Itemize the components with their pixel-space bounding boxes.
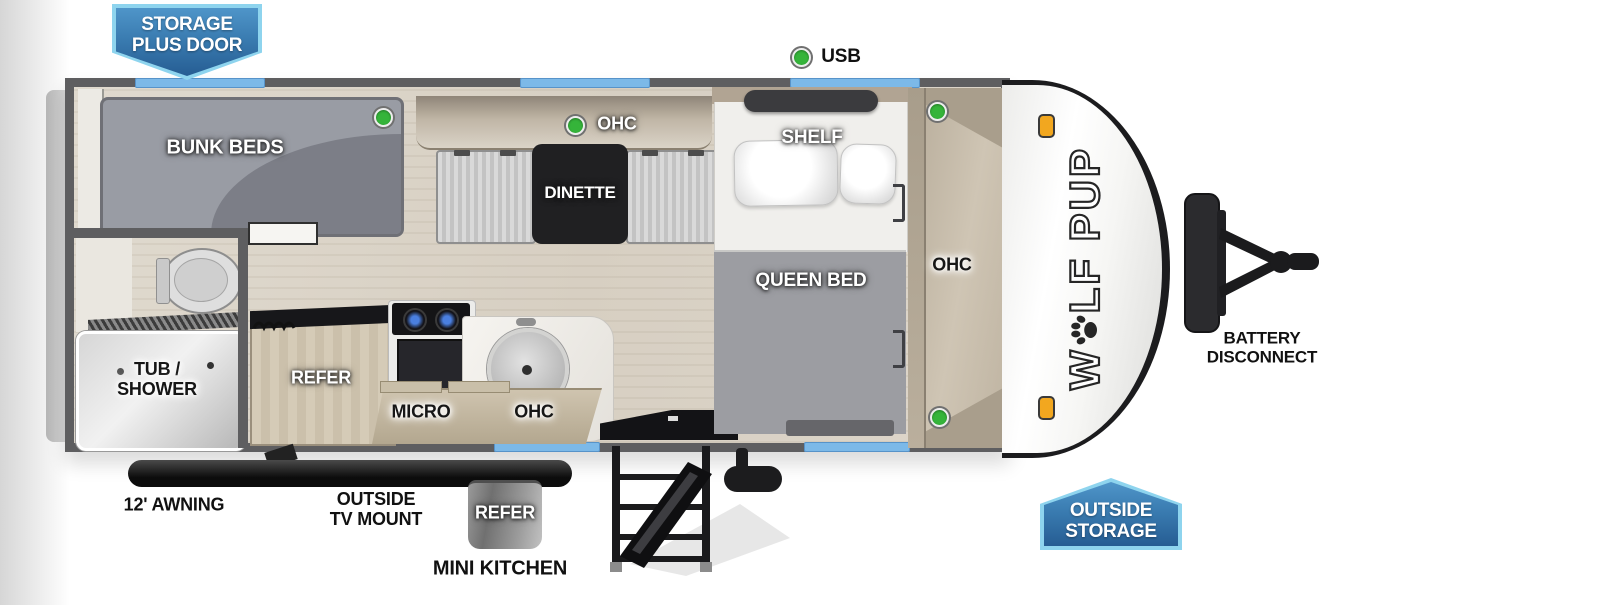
bed-foot-step [786,420,894,436]
brand-logo-post: LF PUP [1061,146,1109,313]
tv-mount-line2: TV MOUNT [330,510,422,530]
brand-logo-pre: W [1061,347,1109,390]
bunk-beds [100,97,404,237]
bedroom-light-dot-top [928,102,947,121]
entry-step-mark [668,416,678,421]
toilet [162,248,242,314]
usb-dot [792,48,811,67]
window-top-dinette [520,78,650,88]
bed-lift-handle-top [893,184,905,222]
bathroom-door [248,222,318,245]
bunk-light-dot [374,108,393,127]
coat-hooks-icon [252,316,300,332]
dinette-light-dot [566,116,585,135]
sink-drain [522,365,532,375]
dinette-ohc-cabinet [416,96,712,150]
bench-bracket [454,150,470,156]
burner-left [403,308,427,332]
faucet [516,318,536,326]
toilet-lid [174,258,228,302]
ohc-door-edge [908,88,926,448]
hitch [1145,182,1320,342]
tub-shower-line1: TUB / [117,360,197,380]
brand-logo: W LF PUP [1061,146,1109,390]
dinette-ohc-label: OHC [597,114,636,135]
toilet-tank [156,258,170,304]
battery-line1: BATTERY [1207,329,1317,348]
micro-label: MICRO [392,402,451,423]
battery-disconnect-label: BATTERY DISCONNECT [1207,329,1317,366]
shelf-label: SHELF [781,127,842,149]
bathroom-wall-top [72,228,248,238]
outside-storage-badge: OUTSIDE STORAGE [1040,478,1182,550]
storage-plus-door-badge: STORAGE PLUS DOOR [112,4,262,80]
tub-shower-line2: SHOWER [117,380,197,400]
outside-refer-label: REFER [475,503,535,524]
tub-shower-label: TUB / SHOWER [117,360,197,400]
dinette-bench-right [626,150,724,244]
badge-line2: STORAGE [1040,521,1182,542]
bench-bracket [500,150,516,156]
outside-storage-text: OUTSIDE STORAGE [1040,500,1182,543]
bench-bracket [688,150,704,156]
marker-light-top [1038,114,1055,138]
badge-line1: OUTSIDE [1040,500,1182,521]
queen-bed-label: QUEEN BED [755,270,866,292]
kitchen-ohc-label: OHC [514,402,553,423]
window-bottom-bedroom [804,442,910,452]
badge-line2: PLUS DOOR [112,35,262,56]
bedroom-ohc-label: OHC [932,255,971,276]
entry-steps [590,446,790,576]
cabinet-flap-left [380,381,442,393]
pillow-right [839,143,897,205]
tv-mount-label: OUTSIDE TV MOUNT [330,490,422,530]
overhead-shelf-bar [744,90,878,112]
bathroom-wall-right [238,228,248,448]
refer-label: REFER [291,368,351,389]
burner-right [435,308,459,332]
bed-lift-handle-bottom [893,330,905,368]
cabinet-flap-right [448,381,510,393]
tv-mount-line1: OUTSIDE [330,490,422,510]
badge-line1: STORAGE [112,14,262,35]
bunk-beds-label: BUNK BEDS [166,137,283,160]
marker-light-bottom [1038,396,1055,420]
awning-label: 12' AWNING [124,495,225,516]
bedroom-light-dot-bottom [930,408,949,427]
floorplan-canvas: BUNK BEDS TUB / SHOWER REFER M [0,0,1600,605]
battery-line2: DISCONNECT [1207,348,1317,367]
pillow-left [733,139,838,207]
storage-plus-door-text: STORAGE PLUS DOOR [112,14,262,57]
bench-bracket [642,150,658,156]
tub-drain-right [207,362,214,369]
dinette-label: DINETTE [544,183,615,203]
paw-print-icon [1069,314,1101,346]
usb-label: USB [821,46,861,68]
dinette-bench-left [436,150,536,244]
mini-kitchen-label: MINI KITCHEN [433,558,567,581]
